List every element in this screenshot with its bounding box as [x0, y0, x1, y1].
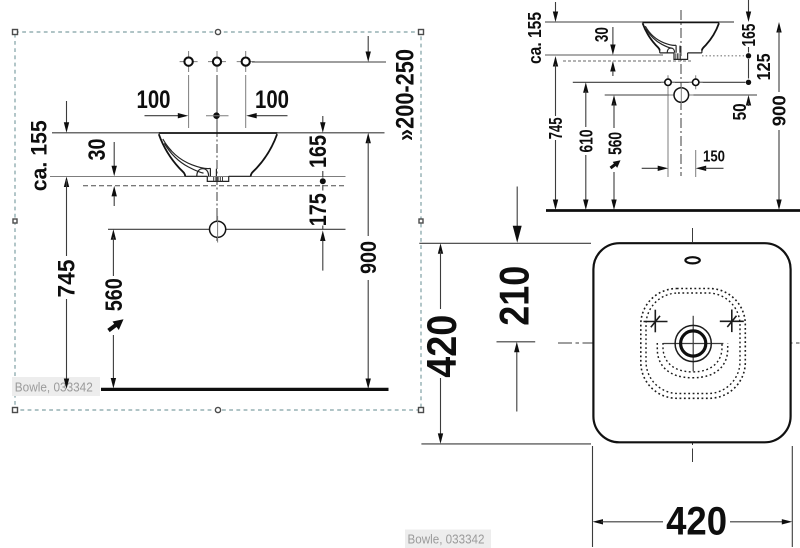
svg-text:175: 175: [305, 193, 332, 226]
svg-text:560: 560: [101, 278, 128, 311]
svg-text:50: 50: [730, 103, 750, 120]
svg-text:165: 165: [305, 135, 332, 168]
svg-text:100: 100: [137, 86, 171, 114]
svg-text:ca. 155: ca. 155: [26, 120, 51, 191]
svg-text:420: 420: [418, 315, 465, 378]
svg-text:165: 165: [739, 24, 759, 47]
svg-text:745: 745: [546, 117, 566, 139]
svg-text:900: 900: [770, 95, 790, 126]
svg-text:30: 30: [592, 27, 612, 42]
svg-text:30: 30: [84, 139, 111, 161]
svg-text:560: 560: [606, 132, 626, 155]
svg-text:210: 210: [491, 266, 538, 326]
svg-text:125: 125: [754, 53, 774, 80]
svg-text:150: 150: [703, 148, 725, 165]
svg-text:ca. 155: ca. 155: [525, 12, 545, 64]
svg-text:610: 610: [577, 130, 597, 153]
svg-text:900: 900: [356, 241, 381, 274]
svg-text:745: 745: [54, 260, 81, 298]
svg-text:100: 100: [255, 86, 289, 114]
svg-text:420: 420: [666, 499, 727, 543]
svg-text:»200-250: »200-250: [392, 49, 420, 141]
svg-text:Bowle, 033342: Bowle, 033342: [15, 380, 93, 395]
svg-text:Bowle, 033342: Bowle, 033342: [408, 532, 485, 547]
